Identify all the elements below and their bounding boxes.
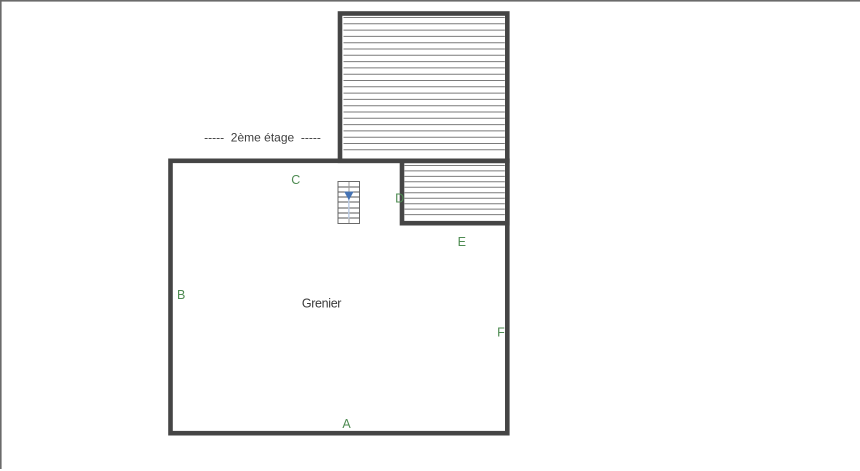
- svg-text:B: B: [177, 288, 185, 302]
- svg-text:D: D: [395, 191, 404, 205]
- svg-text:----- 2ème étage -----: ----- 2ème étage -----: [204, 131, 321, 145]
- svg-text:Grenier: Grenier: [302, 297, 341, 311]
- svg-text:C: C: [291, 173, 300, 187]
- svg-text:F: F: [497, 325, 505, 339]
- svg-text:E: E: [458, 235, 466, 249]
- svg-text:A: A: [342, 417, 351, 431]
